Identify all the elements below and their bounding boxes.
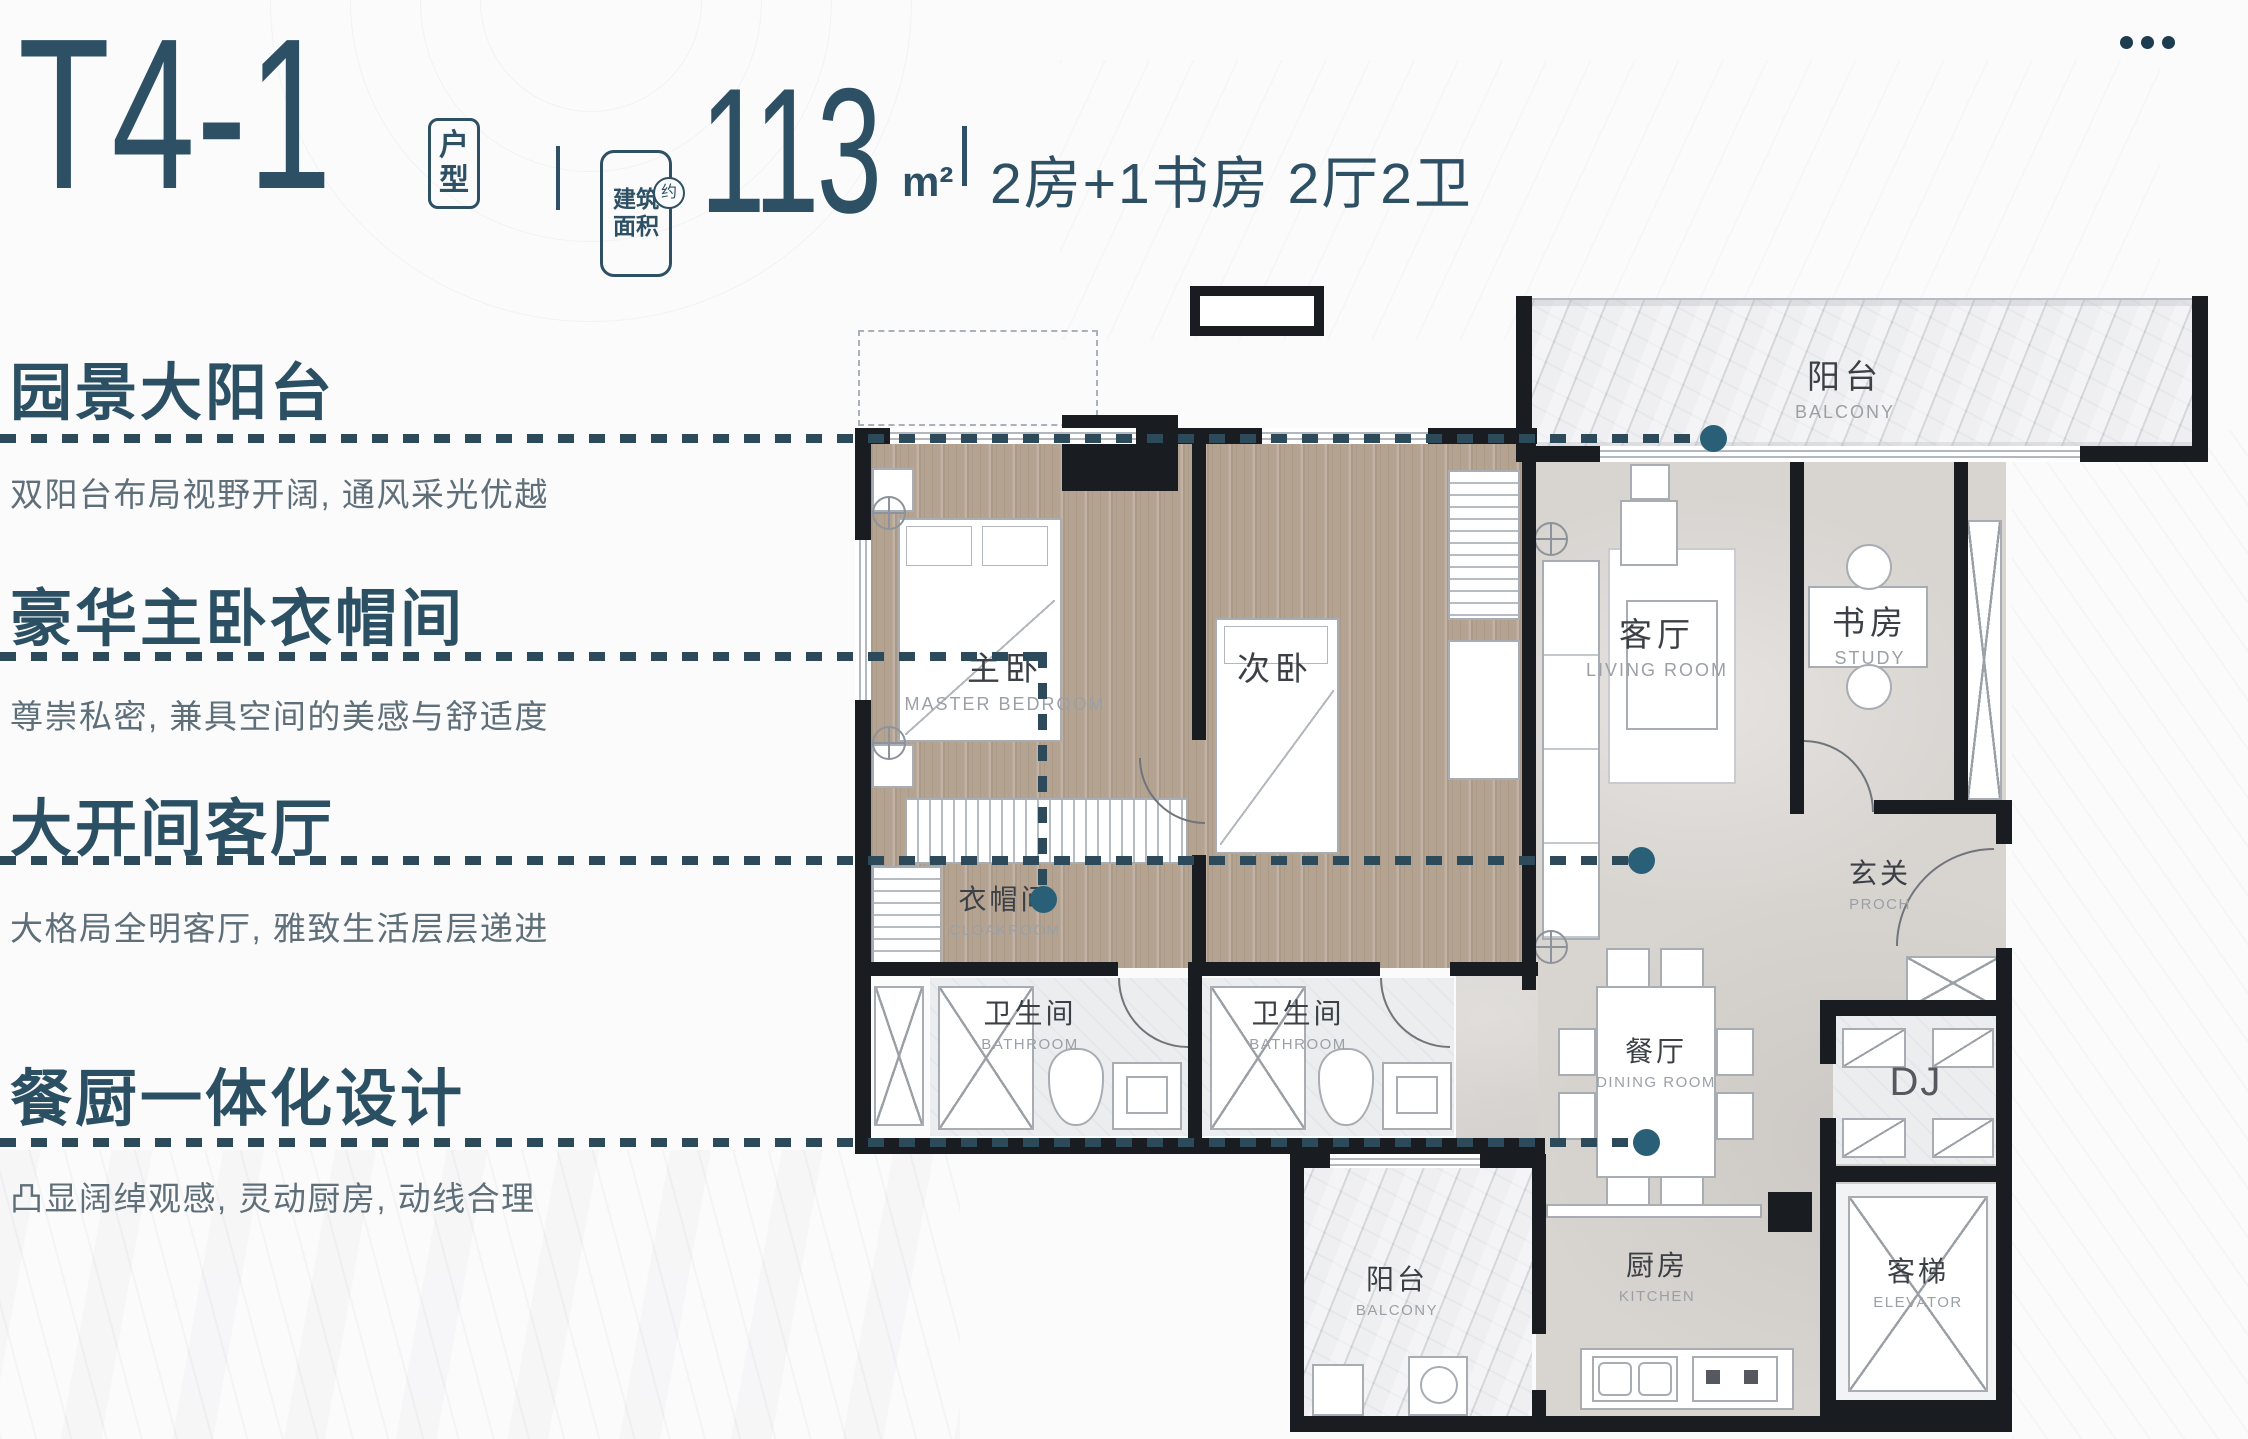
wall-bed-bath-a (855, 962, 1118, 976)
dining-chair (1558, 1092, 1596, 1140)
wall-dj-elevator (1820, 1166, 2012, 1182)
corridor-floor (1456, 975, 1538, 1147)
dot-icon (2120, 36, 2133, 49)
layout-summary: 2房+1书房 2厅2卫 (990, 138, 1473, 220)
header-divider-2 (962, 126, 967, 186)
ceiling-fixture-icon (1534, 522, 1568, 556)
room-label-dj: DJ (1868, 1060, 1964, 1105)
room-label-en: KITCHEN (1572, 1288, 1742, 1305)
room-label-zh: 厨房 (1572, 1244, 1742, 1284)
ceiling-fixture-icon (872, 496, 906, 530)
room-label-zh: 客梯 (1830, 1250, 2006, 1290)
feature-heading-1: 园景大阳台 (10, 342, 335, 432)
unit-type-tag: 户 型 (428, 118, 480, 209)
room-label-en: LIVING ROOM (1562, 660, 1752, 681)
building-area-badge: 建筑 面积 约 (600, 150, 672, 277)
dot-icon (2141, 36, 2154, 49)
room-label-balcony-bottom: 阳台 BALCONY (1302, 1258, 1492, 1319)
sink-basin (1638, 1362, 1672, 1396)
kitchen-stove (1692, 1356, 1778, 1402)
room-label-en: STUDY (1800, 648, 1940, 669)
room-label-bathroom-1: 卫生间 BATHROOM (940, 992, 1120, 1053)
room-label-study: 书房 STUDY (1800, 596, 1940, 669)
leader-dot-living (1628, 847, 1655, 874)
second-desk (1448, 640, 1520, 780)
wall-between-baths (1188, 962, 1202, 1154)
study-bay-window (1966, 520, 2002, 800)
page-title: T4-1 (18, 6, 333, 221)
leader-line-dining (0, 1138, 1634, 1147)
area-unit: m² (902, 158, 953, 206)
wall-dj-top (1820, 1000, 2012, 1016)
room-label-zh: 客厅 (1562, 608, 1752, 656)
room-label-cloakroom: 衣帽间 CLOAKROOM (910, 878, 1100, 939)
study-chair (1846, 544, 1892, 590)
wall-kitchen-balcony-a (1532, 1154, 1546, 1334)
room-label-en: MASTER BEDROOM (880, 694, 1130, 715)
room-label-zh: 衣帽间 (910, 878, 1100, 918)
room-label-living-room: 客厅 LIVING ROOM (1562, 608, 1752, 681)
dining-chair (1716, 1092, 1754, 1140)
leader-dot-dining (1633, 1129, 1660, 1156)
wall-pier (1062, 415, 1178, 491)
window-living-top (1600, 446, 2080, 462)
wall-plan-bottom (1290, 1416, 2012, 1432)
bed-throw (1220, 690, 1334, 845)
room-label-zh: 卫生间 (1208, 992, 1388, 1032)
wall-unit-right-b (1996, 948, 2012, 1432)
leader-dot-cloakroom (1030, 886, 1057, 913)
room-label-porch: 玄关 PROCH (1800, 852, 1960, 913)
room-label-second-bedroom: 次卧 (1190, 642, 1360, 690)
feature-heading-3: 大开间客厅 (10, 778, 335, 868)
window-master-left (855, 540, 871, 700)
room-label-en: PROCH (1800, 896, 1960, 913)
room-label-kitchen: 厨房 KITCHEN (1572, 1244, 1742, 1305)
room-label-zh: 主卧 (880, 642, 1130, 690)
feature-desc-4: 凸显阔绰观感, 灵动厨房, 动线合理 (10, 1172, 536, 1220)
ceiling-fixture-icon (1534, 930, 1568, 964)
wall-left (855, 428, 871, 1154)
ac-platform (1190, 286, 1324, 336)
bay-outline (858, 330, 1098, 426)
vanity-basin (1396, 1076, 1438, 1114)
room-label-en: BATHROOM (940, 1036, 1120, 1053)
pillow (982, 526, 1048, 566)
room-label-en: BALCONY (1740, 402, 1950, 423)
pipe-shaft (874, 986, 924, 1126)
room-label-en: BALCONY (1302, 1302, 1492, 1319)
room-label-en: DINING ROOM (1588, 1074, 1724, 1091)
wall-second-living (1522, 442, 1536, 990)
room-label-zh: 卫生间 (940, 992, 1120, 1032)
dining-chair (1606, 948, 1650, 988)
leader-line-cloakroom-v (1038, 652, 1047, 890)
dj-shelf (1842, 1118, 1906, 1158)
vanity-basin (1126, 1076, 1168, 1114)
floorplan-poster: T4-1 户 型 建筑 面积 约 113 m² 2房+1书房 2厅2卫 园景大阳… (0, 0, 2248, 1439)
room-label-en: CLOAKROOM (910, 922, 1100, 939)
feature-desc-1: 双阳台布局视野开阔, 通风采光优越 (10, 468, 549, 516)
study-chair (1846, 664, 1892, 710)
wall-dj-left-a (1820, 1000, 1836, 1064)
room-label-balcony-top: 阳台 BALCONY (1740, 350, 1950, 423)
stove-burner (1706, 1370, 1720, 1384)
wall-master-second-b (1192, 855, 1206, 972)
wall-bed-bath-b (1190, 962, 1380, 976)
sink-basin (1598, 1362, 1632, 1396)
ceiling-fixture-icon (872, 726, 906, 760)
feature-desc-2: 尊崇私密, 兼具空间的美感与舒适度 (10, 690, 549, 738)
washer-drum (1420, 1366, 1458, 1404)
wall-bed-bath-c (1450, 962, 1538, 976)
feature-heading-4: 餐厨一体化设计 (10, 1048, 465, 1138)
room-label-dining-room: 餐厅 DINING ROOM (1588, 1030, 1724, 1091)
more-menu-icon[interactable] (2120, 36, 2175, 49)
approx-badge: 约 (653, 177, 685, 209)
side-chair (1630, 464, 1670, 500)
stove-burner (1744, 1370, 1758, 1384)
leader-dot-balcony (1700, 425, 1727, 452)
kitchen-island-counter (1546, 1204, 1762, 1218)
laundry-sink (1312, 1364, 1364, 1416)
room-label-en: BATHROOM (1208, 1036, 1388, 1053)
wall-master-second-a (1192, 442, 1206, 740)
room-label-zh: 阳台 (1302, 1258, 1492, 1298)
room-label-zh: 玄关 (1800, 852, 1960, 892)
room-label-elevator: 客梯 ELEVATOR (1830, 1250, 2006, 1311)
room-label-en: ELEVATOR (1830, 1294, 2006, 1311)
second-wardrobe (1448, 470, 1520, 620)
room-label-zh: 餐厅 (1588, 1030, 1724, 1070)
wall-study-right (1954, 458, 1968, 814)
dj-shelf (1932, 1118, 1994, 1158)
dining-chair (1660, 948, 1704, 988)
wall-balcony-right (2192, 296, 2208, 462)
side-table (1620, 500, 1678, 566)
wall-unit-right-a (1996, 800, 2012, 844)
area-value: 113 (700, 62, 879, 240)
pillow (906, 526, 972, 566)
deco-leaf-pattern-right (2012, 430, 2248, 1439)
leader-line-balcony (0, 434, 1700, 443)
room-label-zh: 阳台 (1740, 350, 1950, 398)
feature-desc-3: 大格局全明客厅, 雅致生活层层递进 (10, 902, 549, 950)
room-label-bathroom-2: 卫生间 BATHROOM (1208, 992, 1388, 1053)
room-label-zh: 书房 (1800, 596, 1940, 644)
room-label-zh: DJ (1868, 1060, 1964, 1105)
header-divider-1 (556, 146, 560, 210)
room-label-zh: 次卧 (1190, 642, 1360, 690)
dot-icon (2162, 36, 2175, 49)
feature-heading-2: 豪华主卧衣帽间 (10, 568, 465, 658)
window-balcony-bottom (1330, 1154, 1480, 1168)
wall-kitchen-pier (1768, 1192, 1812, 1232)
